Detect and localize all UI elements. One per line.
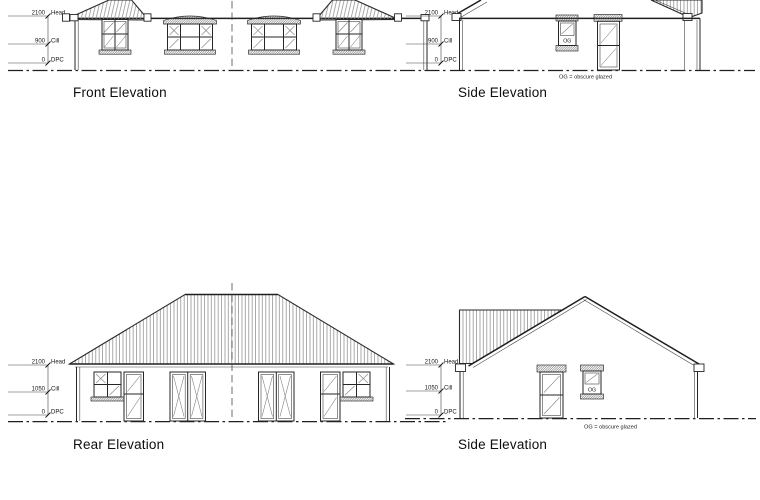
dim-value-cill: 1050 bbox=[32, 387, 46, 393]
dim-value-cill: 1050 bbox=[425, 386, 439, 392]
window-rear-right bbox=[340, 372, 373, 401]
dim-value-cill: 900 bbox=[428, 39, 439, 45]
dim-value-dpc: 0 bbox=[435, 58, 439, 64]
dim-name-dpc: DPC bbox=[51, 58, 64, 64]
arched-head bbox=[164, 16, 217, 24]
window-cill bbox=[581, 394, 604, 399]
dim-name-dpc: DPC bbox=[444, 58, 457, 64]
door-head bbox=[537, 365, 566, 372]
og-note: OG = obscure glazed bbox=[559, 75, 612, 81]
dim-name-cill: Cill bbox=[444, 386, 452, 392]
elevations-svg: 2100 Head 900 Cill 0 DPC bbox=[0, 0, 760, 500]
fascia-block bbox=[313, 14, 320, 21]
window-cill bbox=[91, 397, 124, 401]
eaves-corbel bbox=[683, 14, 692, 21]
roof-hipped bbox=[70, 295, 394, 365]
elevation-drawing-sheet: 2100 Head 900 Cill 0 DPC bbox=[0, 0, 760, 500]
window-cill bbox=[333, 50, 365, 54]
french-doors-rear-left bbox=[170, 372, 206, 421]
side-bottom-building: OG OG = obscure glazed bbox=[456, 297, 705, 431]
og-note: OG = obscure glazed bbox=[584, 425, 637, 431]
fascia-block bbox=[63, 14, 70, 21]
door-rear-left bbox=[124, 372, 144, 421]
fascia-block bbox=[144, 14, 151, 21]
door-rear-right bbox=[321, 372, 341, 421]
dim-name-dpc: DPC bbox=[444, 410, 457, 416]
window-cill bbox=[556, 46, 578, 52]
window-front-right-wide bbox=[248, 16, 301, 54]
rear-building bbox=[70, 283, 394, 421]
fascia-block bbox=[395, 14, 402, 21]
dim-name-dpc: DPC bbox=[51, 410, 64, 416]
dim-value-cill: 900 bbox=[35, 39, 46, 45]
window-cill bbox=[249, 50, 300, 54]
dim-value-head: 2100 bbox=[425, 360, 439, 366]
side-bottom-dimension-stack: 2100 Head 1050 Cill 0 DPC bbox=[406, 360, 458, 418]
door-head bbox=[594, 15, 622, 22]
roof-gable-right bbox=[316, 0, 399, 20]
french-doors-rear-right bbox=[259, 372, 295, 421]
window-og-bottom: OG bbox=[581, 365, 604, 399]
window-head bbox=[581, 365, 604, 371]
rear-elevation-view: 2100 Head 1050 Cill 0 DPC bbox=[8, 283, 448, 452]
window-front-left-wide bbox=[164, 16, 217, 54]
window-head bbox=[556, 15, 578, 21]
dim-value-dpc: 0 bbox=[42, 410, 46, 416]
eaves-corbel bbox=[456, 364, 466, 372]
rear-elevation-label: Rear Elevation bbox=[73, 437, 164, 452]
dim-name-cill: Cill bbox=[444, 39, 452, 45]
side-elevation-bottom-view: 2100 Head 1050 Cill 0 DPC bbox=[405, 297, 756, 453]
roof-verge-hatch bbox=[651, 0, 702, 18]
window-rear-left bbox=[91, 372, 124, 401]
side-top-building: OG OG = obscure glazed bbox=[452, 0, 702, 81]
window-og-top: OG bbox=[556, 15, 578, 51]
arched-head bbox=[248, 16, 301, 24]
window-front-left-small bbox=[99, 20, 131, 55]
front-elevation-view: 2100 Head 900 Cill 0 DPC bbox=[8, 0, 448, 100]
front-elevation-label: Front Elevation bbox=[73, 85, 167, 100]
eaves-corbel bbox=[694, 364, 704, 372]
side-elevation-top-label: Side Elevation bbox=[458, 85, 547, 100]
dim-value-dpc: 0 bbox=[42, 58, 46, 64]
door-side-top bbox=[594, 15, 622, 71]
og-window-tag: OG bbox=[563, 39, 571, 45]
window-cill bbox=[340, 397, 373, 401]
dim-name-cill: Cill bbox=[51, 39, 59, 45]
front-dimension-stack: 2100 Head 900 Cill 0 DPC bbox=[8, 11, 65, 66]
window-cill bbox=[99, 50, 131, 54]
dim-value-head: 2100 bbox=[32, 360, 46, 366]
door-side-bottom bbox=[537, 365, 566, 418]
window-cill bbox=[165, 50, 216, 54]
og-window-tag: OG bbox=[588, 388, 596, 394]
roof-verge-hatch bbox=[460, 310, 563, 364]
dim-name-head: Head bbox=[51, 360, 65, 366]
dim-name-cill: Cill bbox=[51, 387, 59, 393]
window-front-right-small bbox=[333, 20, 365, 55]
eaves-corbel bbox=[70, 15, 78, 21]
side-elevation-top-view: 2100 Head 900 Cill 0 DPC bbox=[406, 0, 755, 100]
dim-value-dpc: 0 bbox=[435, 410, 439, 416]
rear-dimension-stack: 2100 Head 1050 Cill 0 DPC bbox=[8, 360, 65, 418]
dim-value-head: 2100 bbox=[425, 11, 439, 17]
side-elevation-bottom-label: Side Elevation bbox=[458, 437, 547, 452]
front-building bbox=[63, 0, 430, 70]
dim-value-head: 2100 bbox=[32, 11, 46, 17]
